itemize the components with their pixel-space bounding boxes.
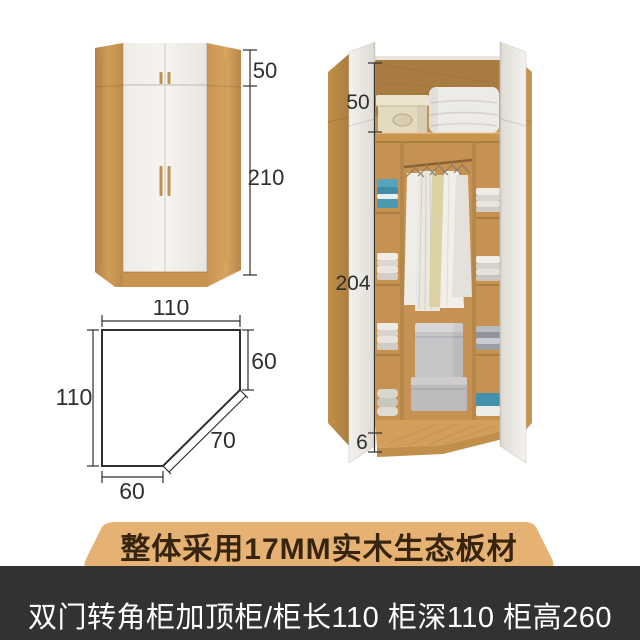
plan-bottom-width-label: 60: [119, 478, 145, 504]
product-image: 50 210 110 110 60 70: [0, 0, 640, 640]
closed-height-dimension: 50 210: [243, 50, 284, 275]
spec-footer-text: 双门转角柜加顶柜/柜长110 柜深110 柜高260: [28, 594, 612, 636]
open-interior-height-label: 204: [335, 272, 370, 295]
interior-floor: [375, 420, 507, 448]
main-door-handle: [160, 166, 163, 196]
main-door-handle: [168, 166, 171, 196]
open-base-height-label: 6: [356, 431, 368, 454]
quilt-storage-bag: [429, 87, 499, 133]
plan-top-width-label: 110: [153, 300, 190, 320]
floor-plan: 110 110 60 70 60: [55, 300, 285, 510]
plan-diagonal-label: 70: [210, 427, 236, 453]
closed-left-side-panel: [95, 43, 123, 287]
gray-storage-boxes: [411, 323, 467, 411]
material-banner-text: 整体采用17MM实木生态板材: [83, 522, 555, 570]
plan-left-depth-label: 110: [56, 384, 93, 410]
top-cabinet-height-label: 50: [253, 58, 277, 83]
body-height-label: 210: [248, 165, 285, 190]
top-door-handle: [168, 72, 171, 84]
hanging-clothes: [404, 171, 472, 311]
carcass-top-edge: [375, 56, 500, 60]
rolled-towel-stack: [377, 389, 398, 416]
closed-right-side-panel: [207, 43, 241, 287]
folded-clothes-stack: [377, 323, 398, 350]
plan-right-depth-label: 60: [251, 348, 277, 374]
left-partition: [400, 142, 404, 427]
floor-plan-top-dimension: 110: [102, 300, 240, 327]
blue-towel-item: [476, 393, 500, 416]
folded-clothes-stack: [377, 253, 398, 280]
floor-plan-bottom-dimension: 60: [102, 471, 163, 504]
spec-footer: 双门转角柜加顶柜/柜长110 柜深110 柜高260: [0, 566, 640, 640]
right-open-door: [500, 42, 526, 463]
open-top-section-label: 50: [346, 91, 369, 114]
floor-plan-right-dimension: 60: [242, 330, 277, 390]
storage-box: [376, 95, 429, 133]
folded-clothes-stack: [476, 256, 500, 281]
right-partition: [472, 142, 476, 427]
floor-plan-left-dimension: 110: [56, 330, 99, 466]
open-wardrobe-view: 50 204 6: [305, 25, 555, 495]
top-shelf: [375, 133, 500, 142]
folded-clothes-stack: [476, 326, 500, 350]
material-banner: 整体采用17MM实木生态板材: [83, 522, 555, 570]
blue-towel-stack: [377, 179, 398, 208]
top-door-handle: [160, 72, 163, 84]
closed-wardrobe-view: 50 210: [55, 30, 290, 310]
closed-plinth: [123, 272, 207, 287]
folded-clothes-stack: [476, 188, 500, 212]
